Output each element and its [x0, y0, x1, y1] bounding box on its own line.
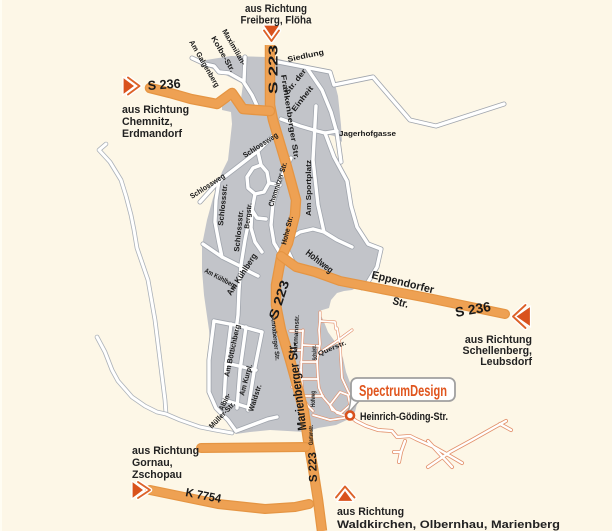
svg-text:Chemnitz,: Chemnitz,: [122, 116, 173, 128]
svg-text:S 223: S 223: [307, 452, 320, 482]
svg-text:Hofweg: Hofweg: [310, 391, 317, 407]
svg-text:aus Richtung: aus Richtung: [245, 3, 307, 15]
svg-text:Heinrich-Göding-Str.: Heinrich-Göding-Str.: [360, 411, 448, 423]
svg-text:Jagerhofgasse: Jagerhofgasse: [339, 129, 396, 138]
svg-text:Waldkirchen, Olbernhau, Marien: Waldkirchen, Olbernhau, Marienberg: [337, 519, 560, 531]
svg-text:Am Sportplatz: Am Sportplatz: [304, 160, 313, 216]
svg-text:aus Richtung: aus Richtung: [122, 104, 189, 116]
svg-text:S 236: S 236: [147, 76, 181, 93]
svg-text:aus Richtung: aus Richtung: [337, 506, 404, 518]
svg-text:Freiberg, Flöha: Freiberg, Flöha: [241, 15, 312, 27]
svg-text:Erdmandorf: Erdmandorf: [122, 128, 183, 140]
svg-text:Leubsdorf: Leubsdorf: [480, 356, 532, 368]
svg-text:SpectrumDesign: SpectrumDesign: [359, 383, 447, 400]
svg-text:Zschopau: Zschopau: [132, 469, 182, 481]
svg-text:Gornau,: Gornau,: [132, 457, 173, 469]
svg-text:S 223: S 223: [267, 45, 281, 94]
svg-text:aus Richtung: aus Richtung: [132, 445, 199, 457]
